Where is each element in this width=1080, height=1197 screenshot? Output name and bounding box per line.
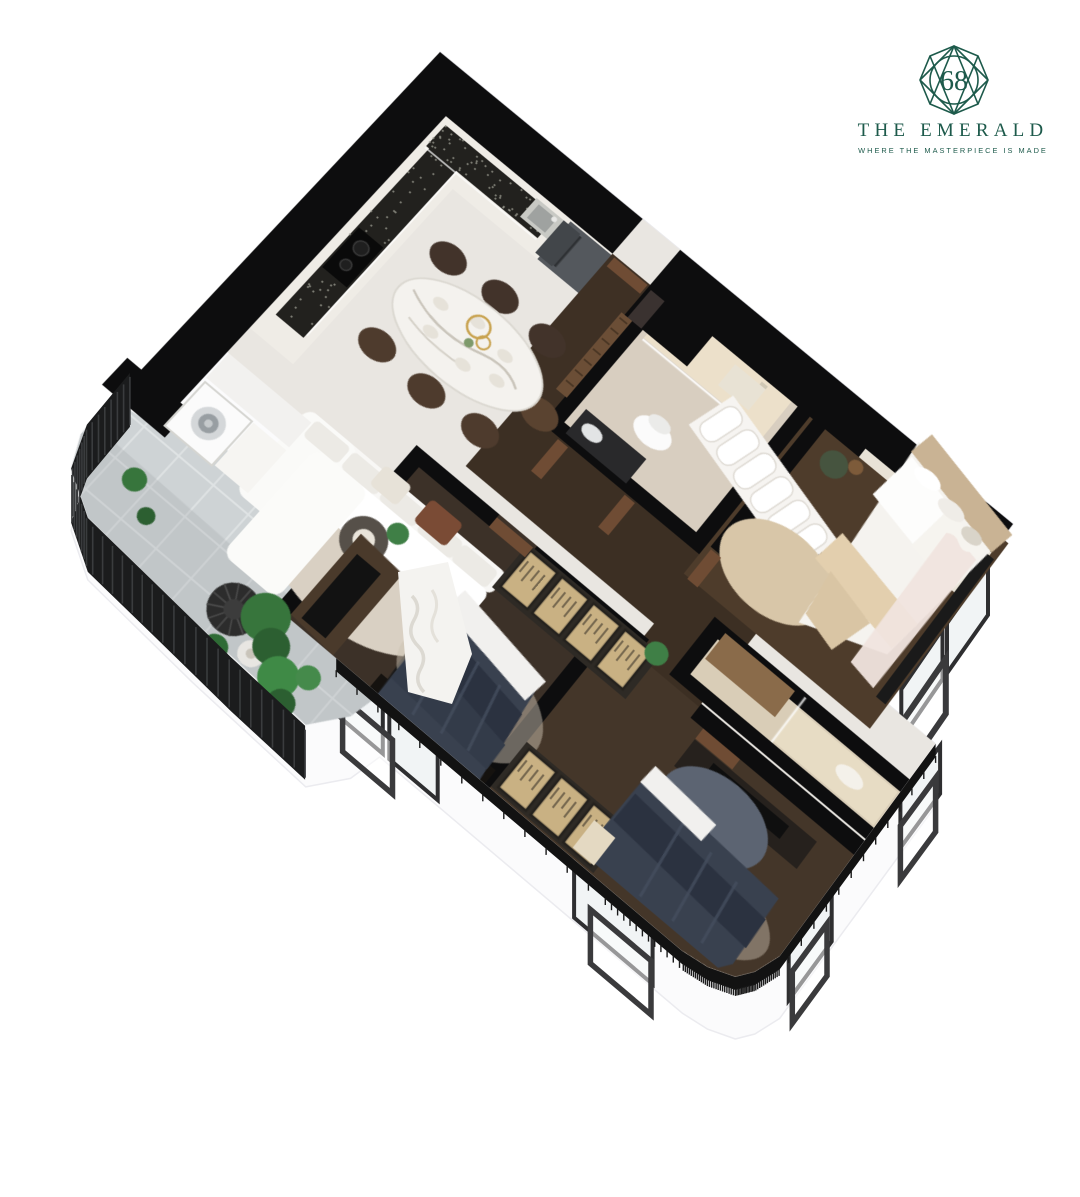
svg-text:WHERE THE MASTERPIECE IS MADE: WHERE THE MASTERPIECE IS MADE	[858, 146, 1048, 155]
svg-text:68: 68	[940, 66, 968, 97]
svg-text:THE EMERALD: THE EMERALD	[858, 120, 1049, 141]
